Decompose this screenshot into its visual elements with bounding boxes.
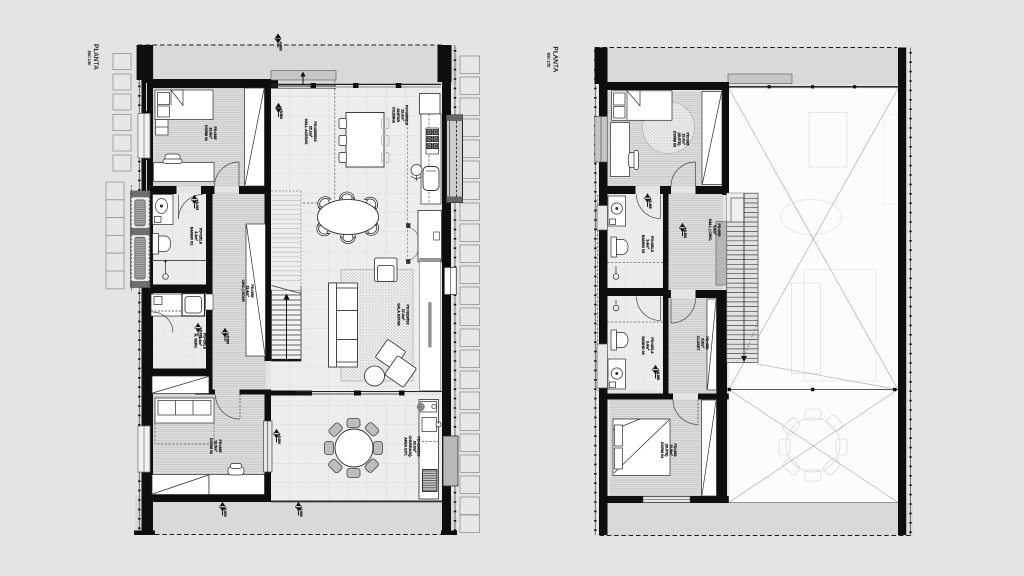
svg-text:DORM 0213.5m²PD=265: DORM 0213.5m²PD=265 [209,438,222,454]
svg-text:DORM 04(SUITE)12.8m²PD=250: DORM 04(SUITE)12.8m²PD=250 [660,442,677,458]
svg-text:+5.500: +5.500 [277,434,281,444]
svg-text:+5.415: +5.415 [199,328,203,338]
svg-text:DORM 0113.5m²PD=265: DORM 0113.5m²PD=265 [204,125,217,141]
svg-text:+5.415: +5.415 [195,200,199,210]
svg-text:+8.285: +8.285 [648,198,652,208]
svg-text:-0.003: -0.003 [299,507,303,517]
svg-text:ESC 1:50: ESC 1:50 [547,53,551,68]
svg-text:+8.300: +8.300 [683,228,687,238]
svg-text:PLANTA: PLANTA [92,44,99,70]
svg-text:-0.003: -0.003 [279,41,283,51]
svg-text:COZINHAJANTAR22.0m²PD=265/519: COZINHAJANTAR22.0m²PD=265/519 [392,105,409,125]
svg-text:-0.020: -0.020 [223,507,227,517]
svg-text:+5.500: +5.500 [226,334,230,344]
svg-text:ESC 1:50: ESC 1:50 [87,51,91,66]
svg-text:PLANTA: PLANTA [552,46,559,72]
svg-text:+5.500: +5.500 [279,109,283,119]
svg-text:DORM 03(SUITE)12.0m²PD=265: DORM 03(SUITE)12.0m²PD=265 [673,131,690,147]
svg-text:AREA EXT.CHURRASQ.20.3m²PD=265: AREA EXT.CHURRASQ.20.3m²PD=265/519 [404,436,421,458]
svg-text:+8.285: +8.285 [656,370,660,380]
